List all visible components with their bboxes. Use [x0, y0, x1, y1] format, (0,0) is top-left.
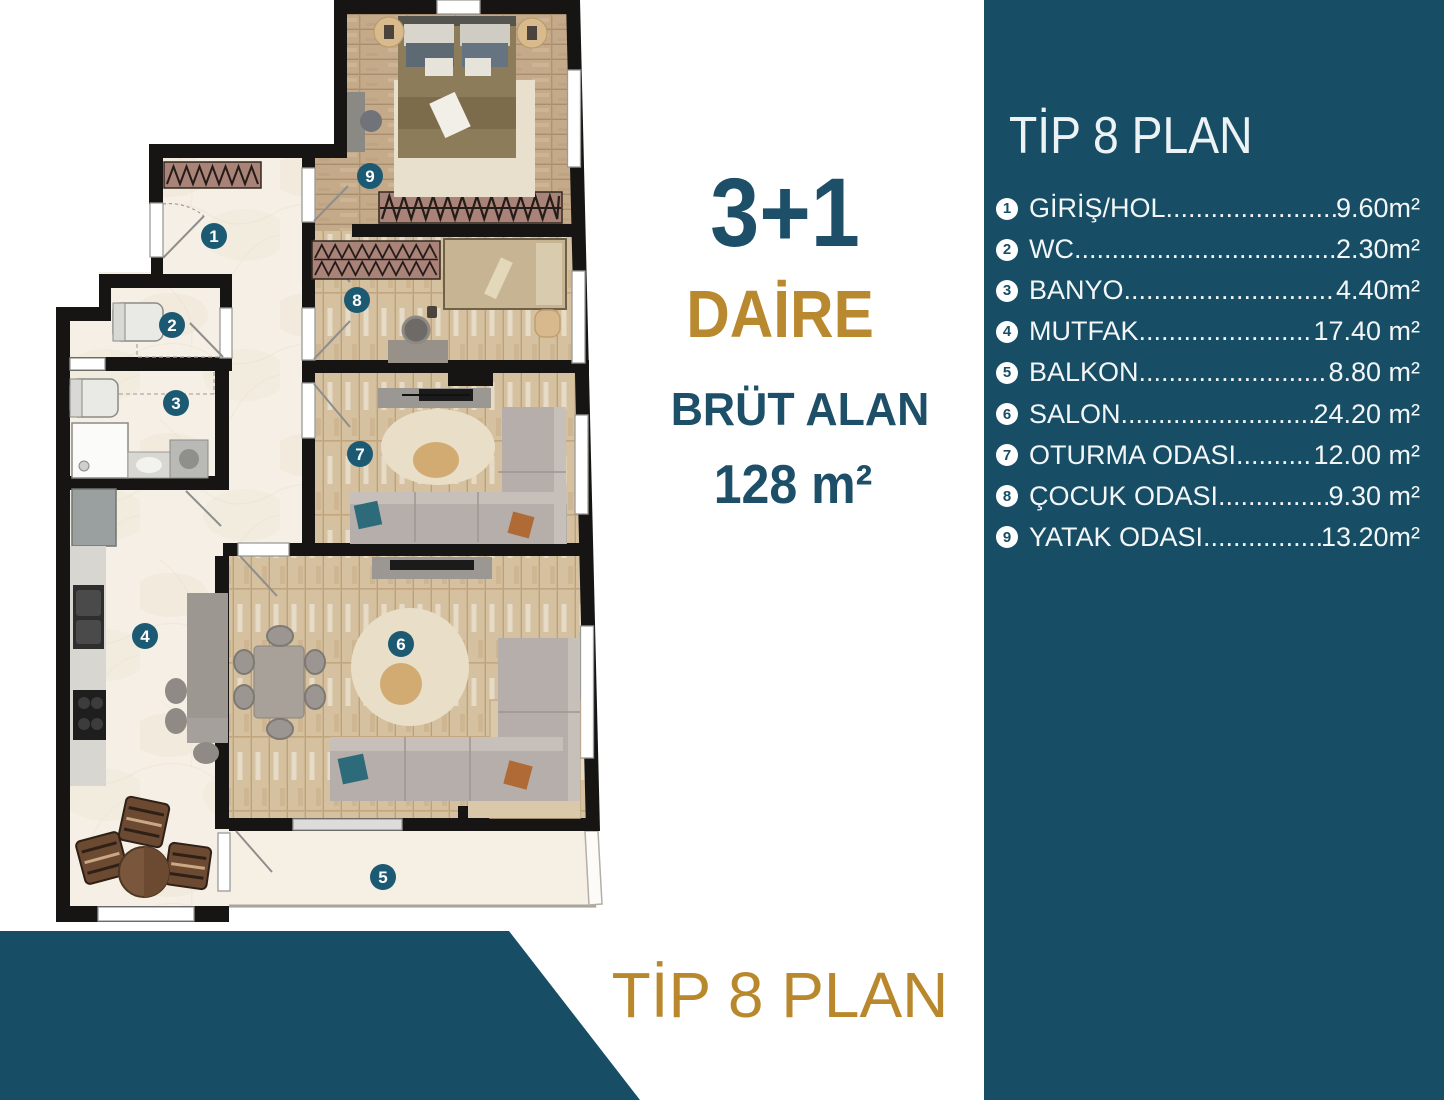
svg-text:9: 9: [365, 167, 374, 186]
svg-text:8: 8: [352, 291, 361, 310]
svg-text:6: 6: [396, 635, 405, 654]
svg-text:7: 7: [355, 445, 364, 464]
svg-text:4: 4: [140, 627, 150, 646]
svg-text:3: 3: [171, 394, 180, 413]
svg-text:5: 5: [378, 868, 387, 887]
svg-text:2: 2: [167, 316, 176, 335]
svg-text:1: 1: [209, 227, 218, 246]
